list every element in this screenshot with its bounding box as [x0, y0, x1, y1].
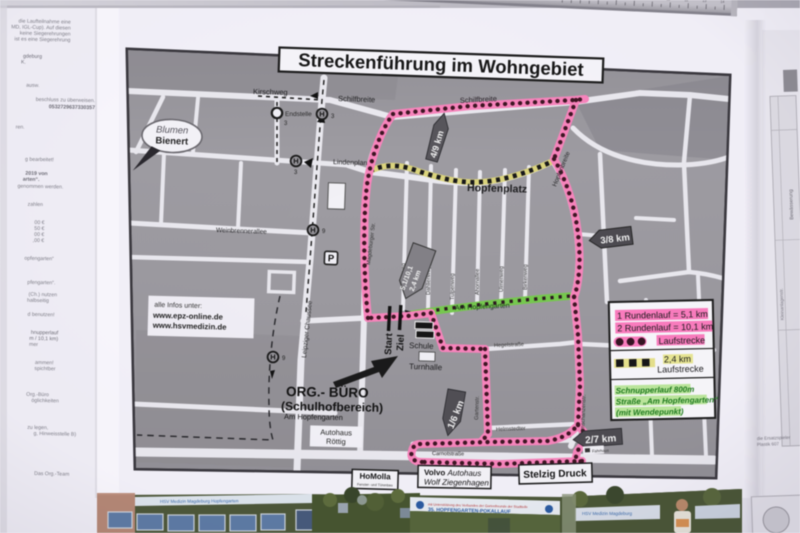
- svg-text:Hegelstraße: Hegelstraße: [494, 342, 524, 349]
- svg-text:Röttig: Röttig: [326, 437, 346, 447]
- svg-text:Carnotstraße: Carnotstraße: [432, 451, 464, 458]
- svg-text:Volvo Autohaus: Volvo Autohaus: [424, 468, 481, 478]
- svg-text:Kirschweg: Kirschweg: [253, 87, 288, 97]
- svg-text:alle Infos unter:: alle Infos unter:: [154, 302, 202, 310]
- svg-text:0532729637330357: 0532729637330357: [49, 104, 95, 111]
- svg-text:HSV Medizin Magdeburg Hopfeng: HSV Medizin Magdeburg Hopfengarten: [160, 498, 239, 504]
- svg-text:Bewässerung: Bewässerung: [788, 189, 795, 220]
- svg-text:Laufstrecke: Laufstrecke: [658, 335, 705, 346]
- svg-text:Gartenstr.: Gartenstr.: [474, 395, 481, 420]
- svg-text:spichtber: spichtber: [34, 366, 55, 372]
- svg-text:Ulmenweg: Ulmenweg: [499, 266, 505, 292]
- svg-text:H: H: [319, 110, 324, 119]
- svg-text:(mit Wendepunkt): (mit Wendepunkt): [616, 407, 684, 417]
- svg-text:13: 13: [702, 0, 706, 3]
- svg-text:arten“.: arten“.: [23, 177, 40, 183]
- svg-text:Turnhalle: Turnhalle: [409, 362, 443, 372]
- svg-text:HSV Medizin Magdeburg: HSV Medizin Magdeburg: [582, 511, 633, 516]
- svg-text:H: H: [293, 157, 298, 166]
- svg-text:Hopfenplatz: Hopfenplatz: [467, 182, 527, 196]
- svg-text:Am Hopfengarten: Am Hopfengarten: [284, 412, 343, 422]
- svg-text:11: 11: [666, 0, 670, 1]
- svg-text:pfengarten“.: pfengarten“.: [27, 280, 55, 287]
- svg-text:H: H: [310, 226, 315, 235]
- svg-text:Ziel: Ziel: [395, 334, 407, 351]
- svg-text:12: 12: [684, 0, 688, 2]
- svg-text:Fahrhaus: Fahrhaus: [592, 448, 609, 454]
- svg-text:g, Hinweisstelle B): g, Hinweisstelle B): [33, 431, 76, 438]
- svg-text:Helmstedter: Helmstedter: [496, 426, 526, 433]
- svg-text:Endstelle: Endstelle: [285, 111, 312, 118]
- svg-text:Birkenweg: Birkenweg: [523, 264, 529, 290]
- svg-text:,00 €: ,00 €: [33, 238, 45, 244]
- svg-text:Wolf Ziegenhagen: Wolf Ziegenhagen: [424, 477, 490, 487]
- svg-text:ORG.- BÜRO: ORG.- BÜRO: [286, 384, 369, 400]
- svg-text:Schilfbreite: Schilfbreite: [338, 94, 375, 104]
- svg-text:Tulpenweg: Tulpenweg: [450, 273, 456, 300]
- svg-text:Lindenplan: Lindenplan: [333, 159, 368, 167]
- svg-text:Schule: Schule: [409, 341, 434, 351]
- svg-text:1 Rundenlauf = 5,1 km: 1 Rundenlauf = 5,1 km: [617, 309, 708, 321]
- svg-text:Das Org.-Team: Das Org.-Team: [34, 471, 69, 478]
- svg-text:Bienert: Bienert: [155, 135, 189, 147]
- svg-text:ren.: ren.: [16, 124, 25, 130]
- svg-text:P: P: [328, 253, 335, 264]
- svg-text:H: H: [270, 353, 275, 362]
- svg-text:HoMolla: HoMolla: [359, 472, 391, 482]
- svg-text:mer: mer: [29, 342, 38, 348]
- svg-text:g bearbeitet!: g bearbeitet!: [25, 157, 54, 164]
- svg-text:zahlen: zahlen: [28, 202, 44, 208]
- svg-text:www.epz-online.de: www.epz-online.de: [152, 311, 224, 322]
- svg-text:Laufstrecke: Laufstrecke: [657, 364, 704, 375]
- svg-text:Start: Start: [383, 332, 395, 355]
- svg-text:K.: K.: [21, 60, 26, 66]
- svg-text:Plastik 607: Plastik 607: [757, 441, 780, 447]
- svg-text:d benutzen!: d benutzen!: [27, 312, 54, 319]
- svg-text:halbseitig: halbseitig: [27, 298, 49, 304]
- svg-text:Stelzig Druck: Stelzig Druck: [523, 468, 587, 481]
- svg-text:2,4 km: 2,4 km: [664, 354, 691, 365]
- svg-text:beschluss zu überweisen.: beschluss zu überweisen.: [36, 97, 96, 104]
- svg-text:ist es eine Siegerehrung: ist es eine Siegerehrung: [14, 36, 70, 43]
- svg-text:14: 14: [720, 0, 724, 4]
- svg-text:genommen werden.: genommen werden.: [17, 184, 63, 191]
- svg-text:opfengarten“: opfengarten“: [24, 256, 54, 263]
- svg-text:ausw.: ausw.: [26, 83, 39, 89]
- svg-text:2/7 km: 2/7 km: [585, 433, 617, 446]
- svg-text:Schnupperlauf 800m: Schnupperlauf 800m: [616, 385, 695, 396]
- svg-text:Ahornallee: Ahornallee: [475, 269, 481, 295]
- svg-text:Autohaus: Autohaus: [320, 428, 352, 438]
- svg-text:2 Rundenlauf = 10,1 km: 2 Rundenlauf = 10,1 km: [617, 321, 713, 333]
- svg-text:öglichkeiten: öglichkeiten: [31, 398, 59, 405]
